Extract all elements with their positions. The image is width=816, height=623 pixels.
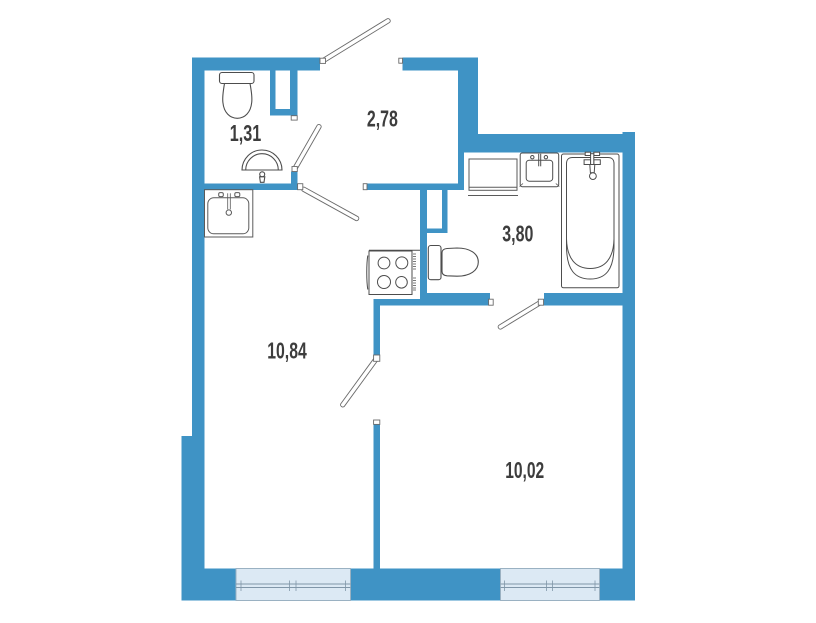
svg-text:3,80: 3,80 (502, 221, 533, 247)
svg-text:10,84: 10,84 (267, 337, 307, 363)
svg-text:1,31: 1,31 (230, 120, 262, 146)
svg-text:2,78: 2,78 (367, 106, 398, 132)
svg-text:10,02: 10,02 (505, 457, 544, 483)
